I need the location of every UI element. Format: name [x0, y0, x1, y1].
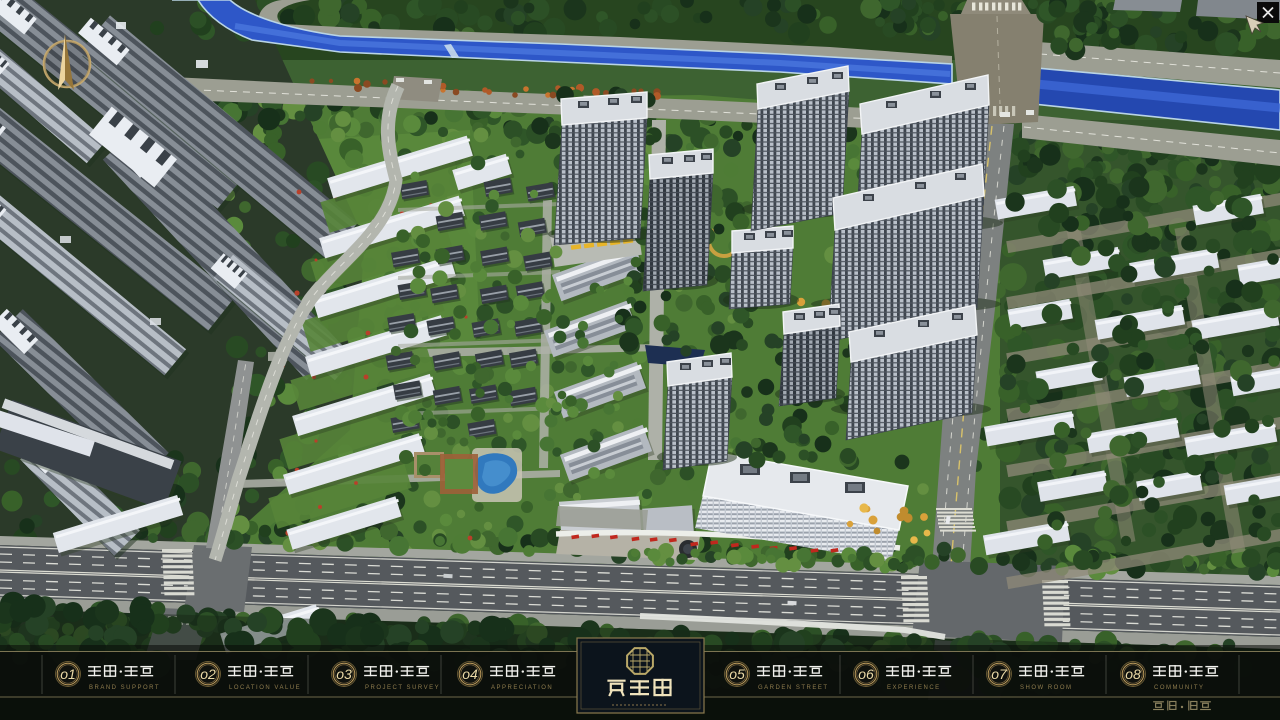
- svg-text:o1: o1: [60, 666, 76, 682]
- svg-text:LOCATION VALUE: LOCATION VALUE: [229, 685, 301, 691]
- svg-text:o2: o2: [200, 666, 216, 682]
- svg-text:COMMUNITY: COMMUNITY: [1154, 685, 1205, 691]
- svg-text:o3: o3: [336, 666, 352, 682]
- svg-text:SHOW ROOM: SHOW ROOM: [1020, 685, 1073, 691]
- svg-text:o4: o4: [462, 666, 478, 682]
- svg-text:EXPERIENCE: EXPERIENCE: [887, 685, 941, 691]
- svg-text:o7: o7: [991, 666, 1008, 682]
- svg-text:o8: o8: [1125, 666, 1141, 682]
- svg-text:BRAND SUPPORT: BRAND SUPPORT: [89, 685, 160, 691]
- svg-text:GARDEN STREET: GARDEN STREET: [758, 685, 829, 691]
- svg-text:o5: o5: [729, 666, 745, 682]
- svg-text:o6: o6: [858, 666, 874, 682]
- svg-text:PROJECT SURVEY: PROJECT SURVEY: [365, 685, 440, 691]
- svg-text:APPRECIATION: APPRECIATION: [491, 685, 553, 691]
